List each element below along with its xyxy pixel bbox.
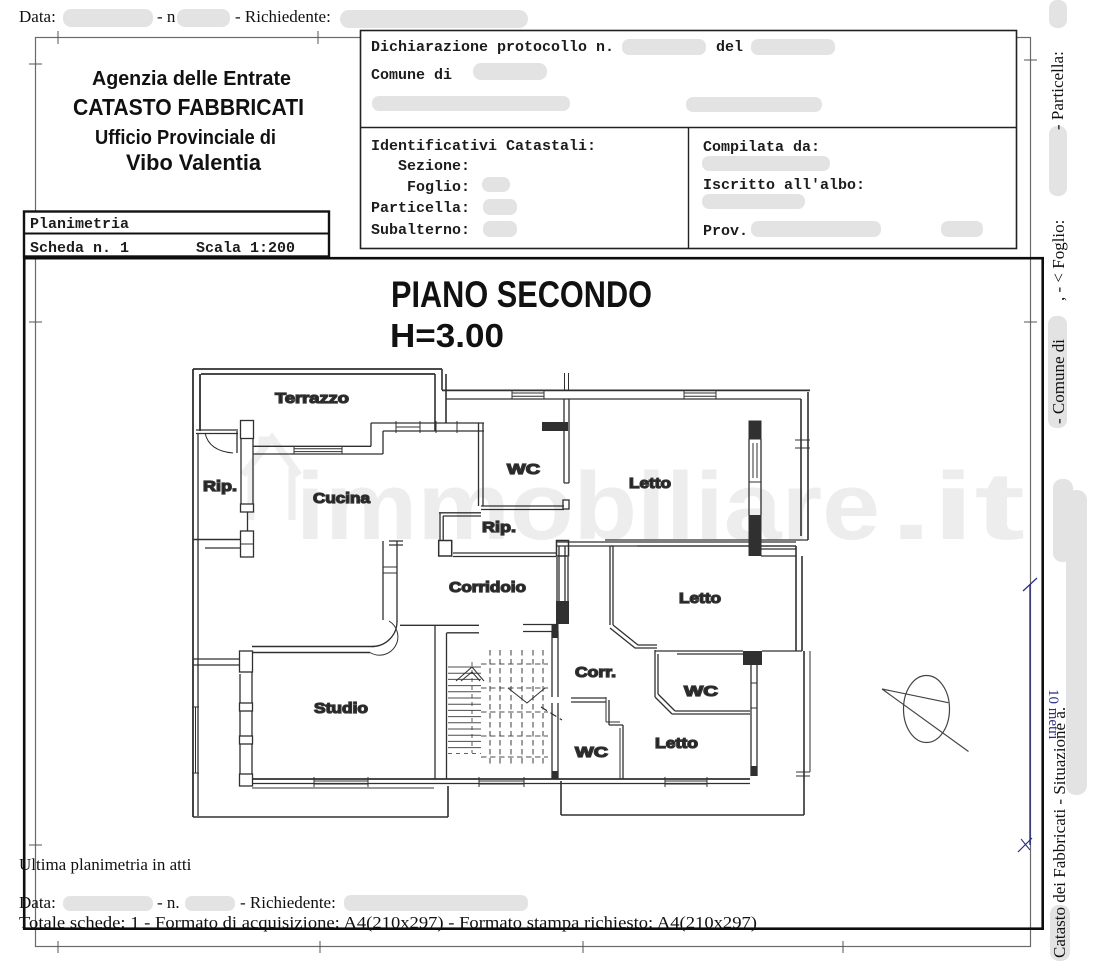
svg-text:Particella:: Particella: <box>371 200 470 217</box>
svg-text:Scheda n. 1: Scheda n. 1 <box>30 240 129 257</box>
svg-text:Ultima planimetria in atti: Ultima planimetria in atti <box>19 855 192 874</box>
svg-text:, - < Foglio:: , - < Foglio: <box>1049 220 1068 301</box>
svg-text:Letto: Letto <box>629 475 671 492</box>
svg-text:Prov.: Prov. <box>703 223 748 240</box>
svg-text:Subalterno:: Subalterno: <box>371 222 470 239</box>
svg-text:.it: .it <box>890 453 1025 560</box>
svg-text:Rip.: Rip. <box>203 478 237 495</box>
svg-text:PIANO SECONDO: PIANO SECONDO <box>391 274 652 315</box>
svg-text:Agenzia delle Entrate: Agenzia delle Entrate <box>92 68 291 90</box>
svg-text:- Particella:: - Particella: <box>1048 51 1067 130</box>
svg-text:Cucina: Cucina <box>313 490 371 507</box>
svg-text:del: del <box>716 39 743 56</box>
svg-text:CATASTO FABBRICATI: CATASTO FABBRICATI <box>73 94 304 120</box>
svg-text:Terrazzo: Terrazzo <box>275 390 349 407</box>
svg-text:Iscritto all'albo:: Iscritto all'albo: <box>703 177 865 194</box>
svg-text:Ufficio Provinciale di: Ufficio Provinciale di <box>95 127 276 149</box>
svg-text:Scala 1:200: Scala 1:200 <box>196 240 295 257</box>
svg-text:Corridoio: Corridoio <box>449 579 526 596</box>
svg-text:- n: - n <box>157 7 176 26</box>
svg-text:Studio: Studio <box>314 700 368 717</box>
svg-text:Dichiarazione protocollo n.: Dichiarazione protocollo n. <box>371 39 614 56</box>
svg-text:Rip.: Rip. <box>482 519 516 536</box>
svg-text:Totale schede: 1 - Formato di: Totale schede: 1 - Formato di acquisizio… <box>19 913 757 932</box>
svg-text:Vibo Valentia: Vibo Valentia <box>126 150 262 175</box>
svg-text:Planimetria: Planimetria <box>30 216 129 233</box>
svg-text:Letto: Letto <box>655 735 698 752</box>
svg-text:- Richiedente:: - Richiedente: <box>235 7 331 26</box>
svg-text:Data:: Data: <box>19 893 56 912</box>
svg-text:Letto: Letto <box>679 590 721 607</box>
svg-text:Sezione:: Sezione: <box>398 158 470 175</box>
svg-text:Identificativi Catastali:: Identificativi Catastali: <box>371 138 596 155</box>
svg-text:WC: WC <box>684 683 718 700</box>
svg-text:Catasto dei Fabbricati - Situa: Catasto dei Fabbricati - Situazione a. <box>1050 707 1069 958</box>
svg-text:Compilata da:: Compilata da: <box>703 139 820 156</box>
svg-text:WC: WC <box>507 461 540 478</box>
svg-text:WC: WC <box>575 744 608 761</box>
svg-text:Corr.: Corr. <box>575 664 616 681</box>
svg-text:- Richiedente:: - Richiedente: <box>240 893 336 912</box>
svg-text:H=3.00: H=3.00 <box>390 317 504 354</box>
svg-text:Foglio:: Foglio: <box>407 179 470 196</box>
svg-text:- n.: - n. <box>157 893 180 912</box>
svg-text:Comune di: Comune di <box>371 67 452 84</box>
svg-text:- Comune di: - Comune di <box>1049 339 1068 424</box>
svg-text:Data:: Data: <box>19 7 56 26</box>
